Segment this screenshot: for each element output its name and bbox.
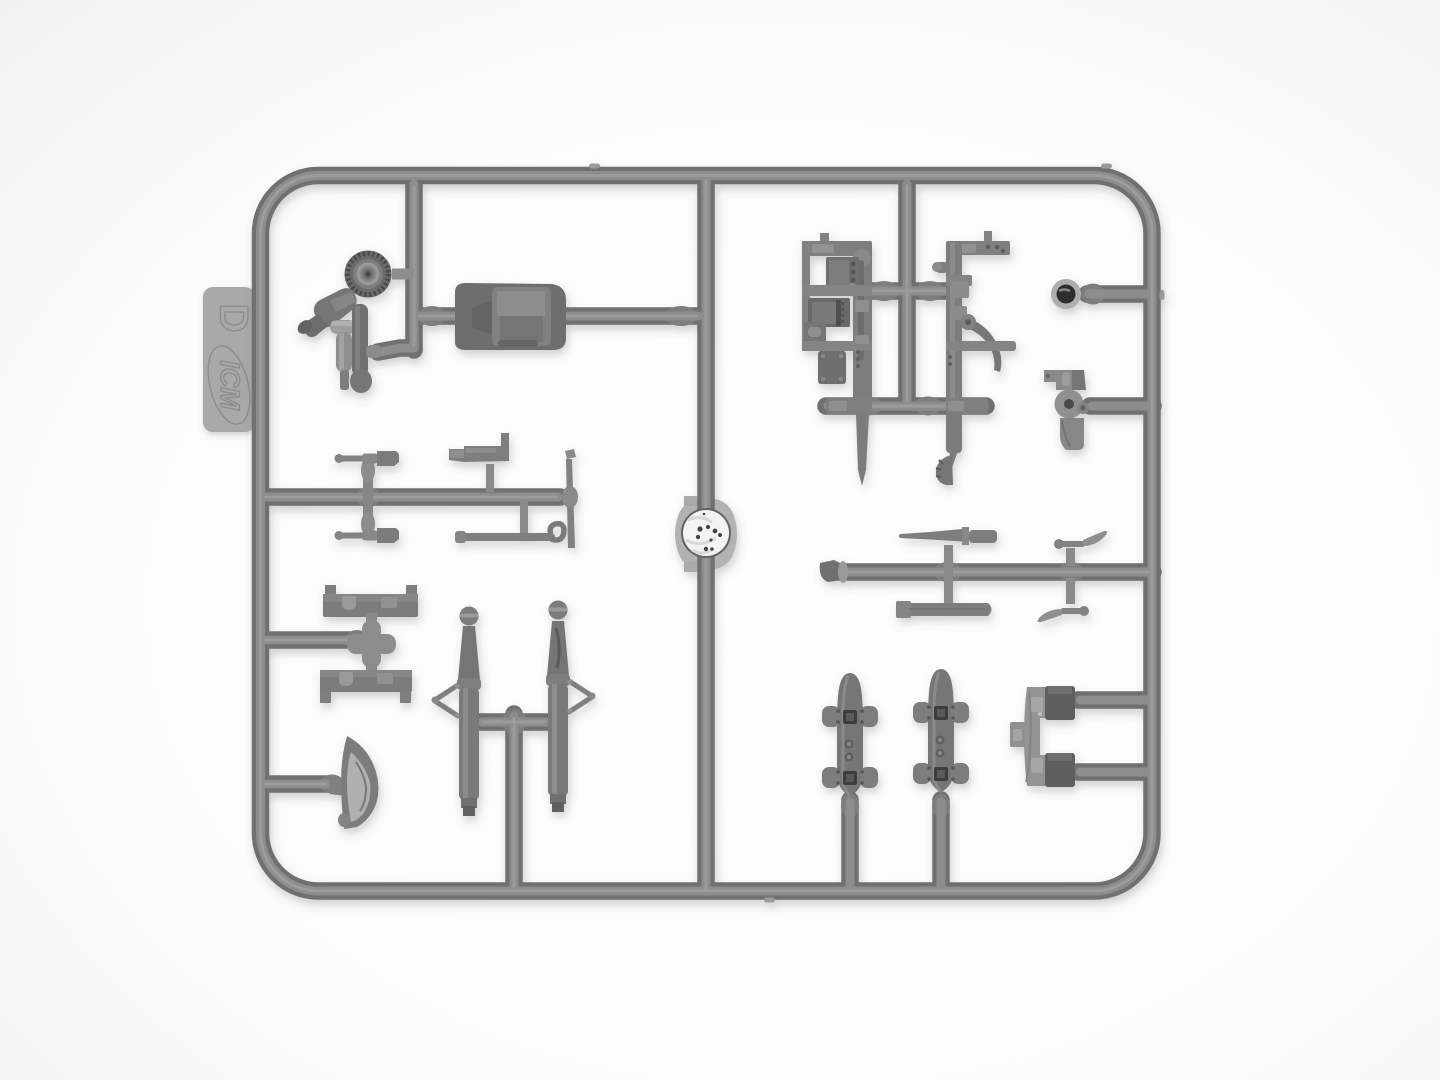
svg-text:ICM: ICM	[215, 360, 245, 410]
svg-text:D: D	[211, 304, 255, 333]
